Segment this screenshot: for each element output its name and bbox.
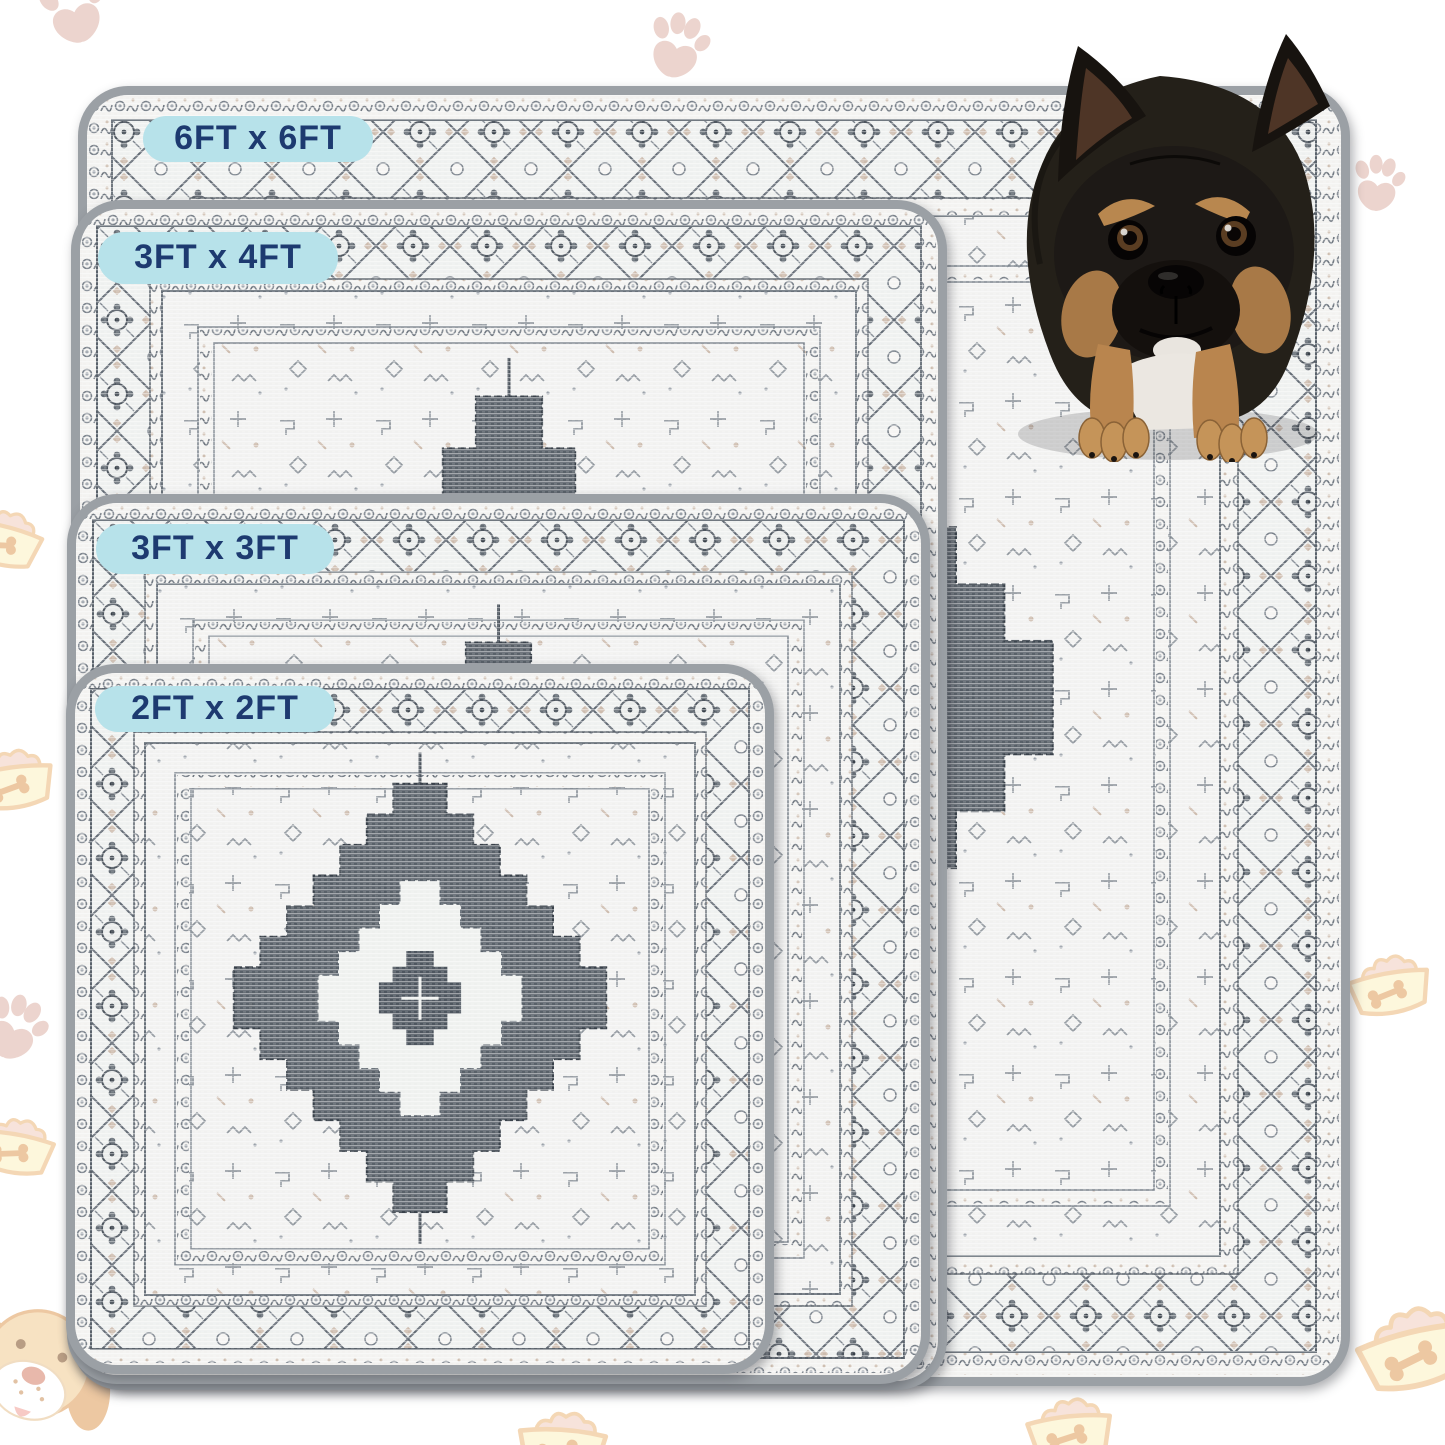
product-image: 6FT x 6FT 3FT x 4FT 3FT x 3FT 2FT x 2FT bbox=[0, 0, 1445, 1445]
paw-print-icon bbox=[18, 0, 128, 62]
paw-print-icon bbox=[627, 0, 729, 95]
food-bowl-icon bbox=[503, 1392, 622, 1445]
food-bowl-icon bbox=[1011, 1379, 1129, 1445]
food-bowl-icon bbox=[0, 1096, 71, 1204]
size-badge-label: 3FT x 3FT bbox=[131, 529, 299, 568]
size-badge-label: 6FT x 6FT bbox=[174, 119, 342, 158]
rug-pattern-art bbox=[75, 673, 765, 1365]
paw-print-icon bbox=[0, 971, 71, 1080]
size-badge-2x2: 2FT x 2FT bbox=[95, 686, 335, 732]
food-bowl-icon bbox=[0, 485, 62, 598]
rug-2ft-x-2ft bbox=[66, 664, 774, 1374]
size-badge-label: 2FT x 2FT bbox=[131, 689, 299, 728]
size-badge-6x6: 6FT x 6FT bbox=[143, 116, 373, 162]
size-badge-3x4: 3FT x 4FT bbox=[98, 232, 338, 284]
size-badge-label: 3FT x 4FT bbox=[134, 238, 302, 277]
food-bowl-icon bbox=[0, 729, 71, 839]
size-badge-3x3: 3FT x 3FT bbox=[96, 524, 334, 574]
